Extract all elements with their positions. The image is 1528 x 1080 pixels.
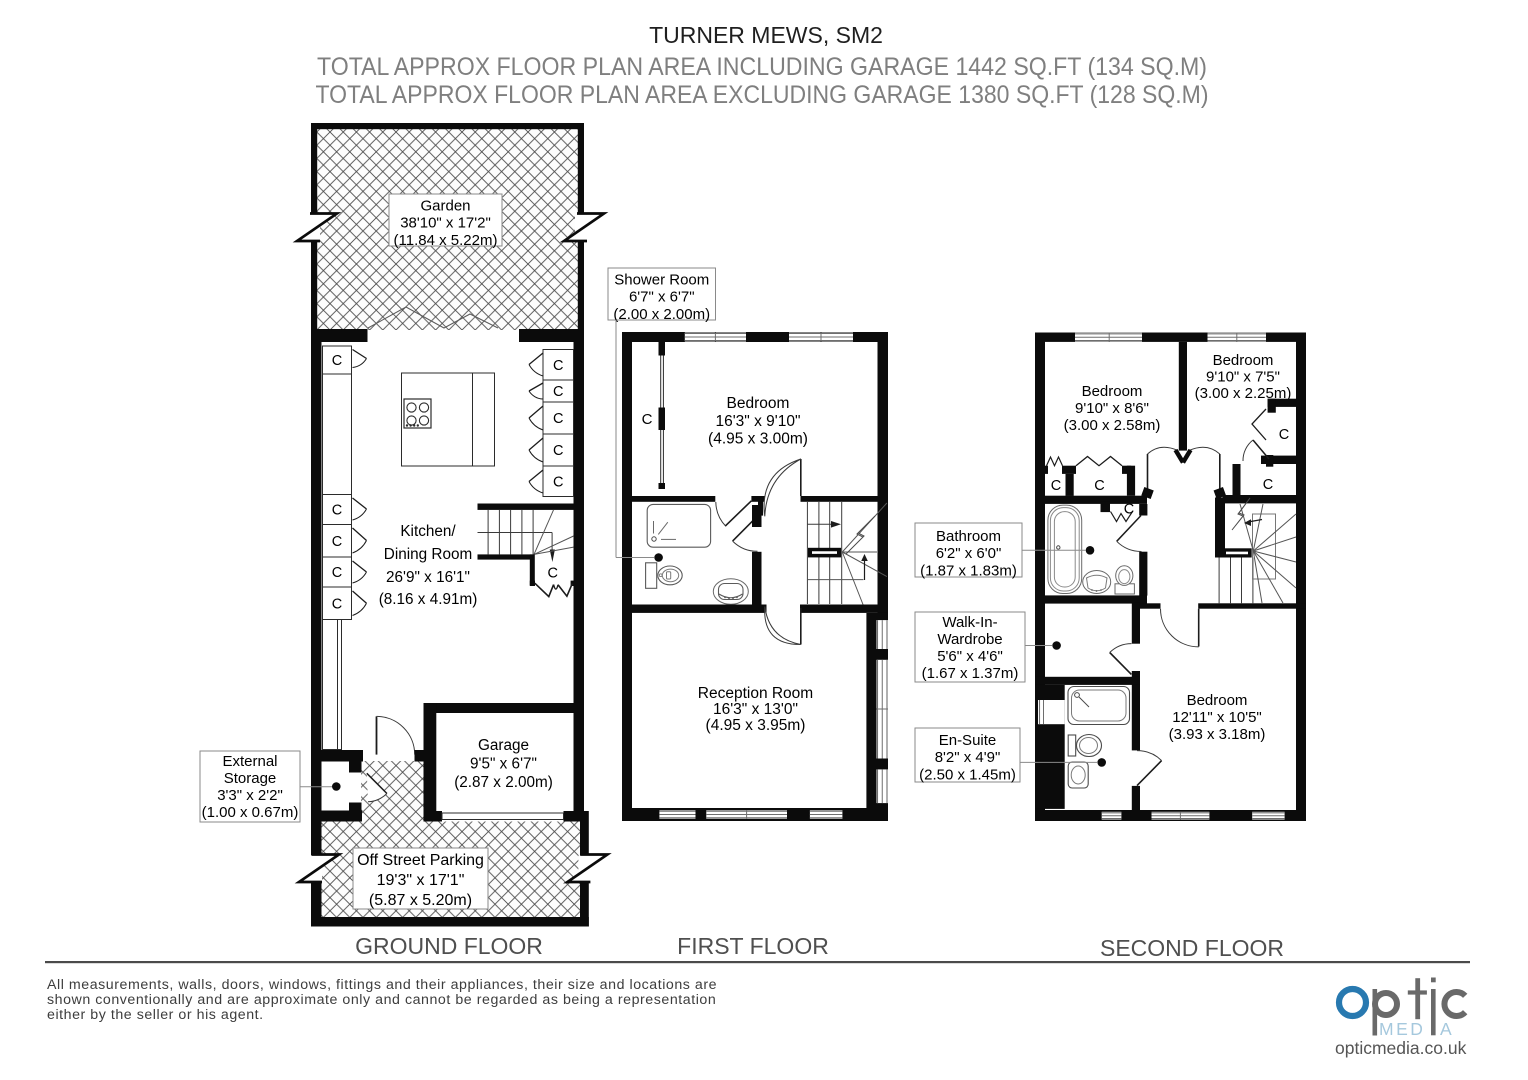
svg-text:C: C: [332, 565, 342, 581]
svg-text:C: C: [332, 503, 342, 519]
svg-text:C: C: [553, 443, 563, 459]
svg-text:C: C: [553, 474, 563, 490]
svg-text:12'11" x 10'5": 12'11" x 10'5": [1172, 709, 1262, 726]
svg-text:9'10" x 8'6": 9'10" x 8'6": [1075, 400, 1149, 417]
svg-text:(8.16 x 4.91m): (8.16 x 4.91m): [379, 591, 478, 608]
svg-text:8'2" x 4'9": 8'2" x 4'9": [935, 749, 1001, 766]
svg-text:Off Street Parking: Off Street Parking: [357, 852, 484, 869]
svg-text:MED: MED: [1379, 1019, 1425, 1039]
svg-text:C: C: [332, 534, 342, 550]
svg-text:opticmedia.co.uk: opticmedia.co.uk: [1335, 1038, 1467, 1058]
svg-text:(5.87 x 5.20m): (5.87 x 5.20m): [369, 892, 472, 909]
svg-text:Storage: Storage: [224, 770, 277, 787]
svg-text:either by the seller or his ag: either by the seller or his agent.: [47, 1007, 264, 1023]
svg-text:Garden: Garden: [420, 198, 470, 215]
svg-text:Bedroom: Bedroom: [1187, 692, 1248, 709]
svg-text:(2.00 x 2.00m): (2.00 x 2.00m): [613, 306, 710, 323]
svg-text:(2.87 x 2.00m): (2.87 x 2.00m): [454, 774, 553, 791]
svg-text:SECOND FLOOR: SECOND FLOOR: [1100, 935, 1284, 961]
svg-text:Wardrobe: Wardrobe: [937, 631, 1002, 648]
svg-text:C: C: [1051, 478, 1061, 494]
svg-text:TOTAL APPROX FLOOR PLAN AREA I: TOTAL APPROX FLOOR PLAN AREA INCLUDING G…: [317, 53, 1207, 81]
svg-text:(4.95 x 3.00m): (4.95 x 3.00m): [708, 431, 808, 448]
svg-text:(1.87 x 1.83m): (1.87 x 1.83m): [920, 562, 1017, 579]
svg-text:(1.67 x 1.37m): (1.67 x 1.37m): [922, 665, 1019, 682]
svg-text:External: External: [222, 753, 277, 770]
svg-text:26'9" x 16'1": 26'9" x 16'1": [386, 569, 470, 586]
svg-text:Bathroom: Bathroom: [936, 528, 1001, 545]
svg-text:FIRST FLOOR: FIRST FLOOR: [677, 933, 829, 959]
svg-text:C: C: [548, 566, 558, 582]
svg-text:Bedroom: Bedroom: [727, 395, 790, 412]
svg-text:5'6" x 4'6": 5'6" x 4'6": [937, 648, 1003, 665]
svg-text:C: C: [1094, 478, 1104, 494]
svg-text:All measurements, walls, doors: All measurements, walls, doors, windows,…: [47, 977, 717, 993]
svg-text:9'10" x 7'5": 9'10" x 7'5": [1206, 369, 1280, 386]
svg-text:(3.00 x 2.58m): (3.00 x 2.58m): [1064, 417, 1161, 434]
svg-text:C: C: [553, 411, 563, 427]
svg-text:(11.84 x 5.22m): (11.84 x 5.22m): [394, 232, 498, 249]
svg-text:(1.00 x 0.67m): (1.00 x 0.67m): [202, 804, 299, 821]
svg-text:Garage: Garage: [478, 737, 529, 754]
svg-text:6'2" x 6'0": 6'2" x 6'0": [936, 545, 1002, 562]
svg-text:6'7" x 6'7": 6'7" x 6'7": [629, 289, 695, 306]
svg-text:Kitchen/: Kitchen/: [400, 523, 456, 540]
svg-text:A: A: [1440, 1019, 1452, 1039]
svg-text:En-Suite: En-Suite: [939, 732, 997, 749]
svg-text:9'5" x 6'7": 9'5" x 6'7": [470, 756, 537, 773]
svg-text:(2.50 x 1.45m): (2.50 x 1.45m): [919, 766, 1016, 783]
svg-text:C: C: [1263, 477, 1273, 493]
svg-text:GROUND FLOOR: GROUND FLOOR: [355, 933, 543, 959]
svg-text:38'10" x 17'2": 38'10" x 17'2": [400, 215, 491, 232]
svg-text:shown conventionally and are a: shown conventionally and are approximate…: [47, 992, 716, 1008]
svg-text:C: C: [642, 411, 653, 428]
svg-text:Bedroom: Bedroom: [1082, 383, 1143, 400]
svg-text:C: C: [332, 353, 342, 369]
svg-text:Dining Room: Dining Room: [384, 546, 472, 563]
svg-text:Shower Room: Shower Room: [614, 272, 709, 289]
svg-text:C: C: [1124, 502, 1134, 518]
svg-text:16'3" x 13'0": 16'3" x 13'0": [713, 701, 798, 718]
svg-text:Bedroom: Bedroom: [1213, 352, 1274, 369]
svg-text:C: C: [553, 358, 563, 374]
svg-text:Reception Room: Reception Room: [698, 685, 813, 702]
svg-text:3'3" x 2'2": 3'3" x 2'2": [217, 787, 283, 804]
svg-text:C: C: [1279, 427, 1289, 443]
svg-text:16'3" x 9'10": 16'3" x 9'10": [715, 413, 800, 430]
svg-text:C: C: [553, 384, 563, 400]
svg-text:(3.93 x 3.18m): (3.93 x 3.18m): [1169, 726, 1266, 743]
svg-text:19'3" x 17'1": 19'3" x 17'1": [377, 872, 465, 889]
svg-text:Walk-In-: Walk-In-: [942, 614, 997, 631]
svg-text:C: C: [332, 596, 342, 612]
svg-text:(4.95 x 3.95m): (4.95 x 3.95m): [706, 717, 806, 734]
svg-text:TURNER MEWS, SM2: TURNER MEWS, SM2: [649, 22, 883, 48]
svg-text:TOTAL APPROX FLOOR PLAN AREA E: TOTAL APPROX FLOOR PLAN AREA EXCLUDING G…: [316, 81, 1209, 109]
